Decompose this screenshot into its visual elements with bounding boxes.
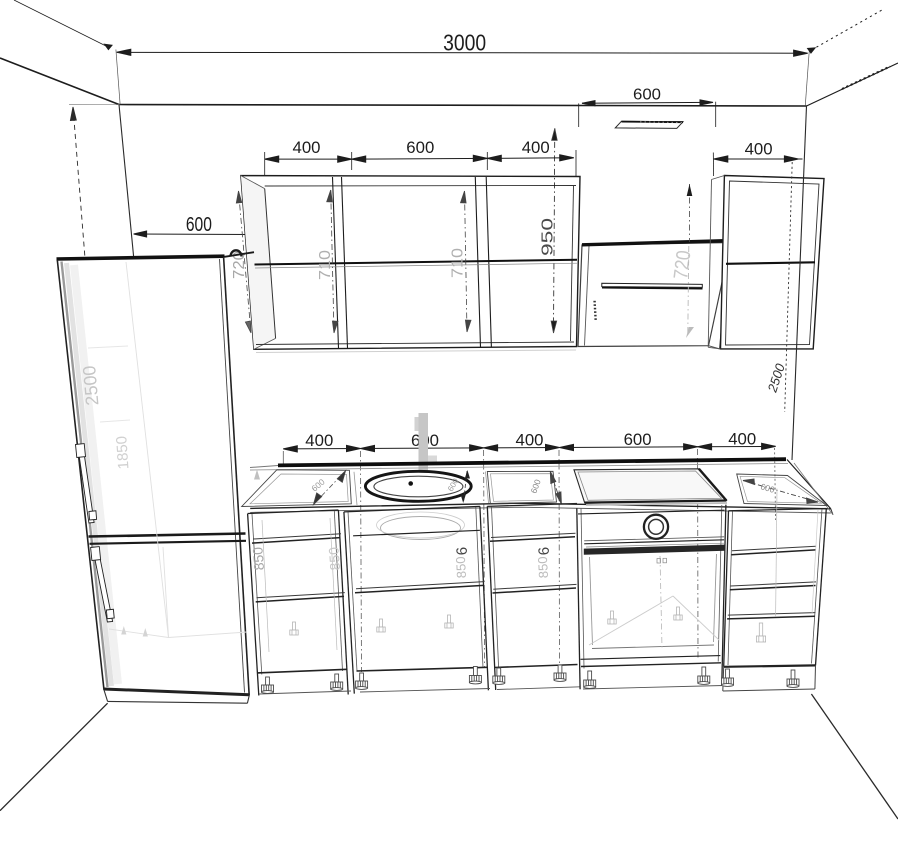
svg-text:6: 6: [454, 546, 471, 555]
svg-text:710: 710: [317, 250, 334, 280]
svg-text:710: 710: [450, 248, 467, 278]
svg-text:1850: 1850: [113, 435, 132, 469]
svg-text:950: 950: [540, 217, 557, 256]
svg-text:400: 400: [522, 138, 550, 157]
svg-text:600: 600: [186, 214, 212, 236]
svg-text:2500: 2500: [79, 365, 102, 407]
svg-text:3000: 3000: [443, 30, 486, 56]
svg-text:720: 720: [670, 249, 695, 280]
svg-text:400: 400: [728, 430, 756, 449]
svg-text:400: 400: [293, 138, 321, 157]
svg-text:850: 850: [249, 546, 267, 571]
svg-text:400: 400: [745, 140, 773, 159]
svg-text:400: 400: [516, 431, 544, 450]
svg-text:850: 850: [325, 546, 343, 571]
svg-text:850: 850: [535, 556, 551, 578]
svg-text:400: 400: [305, 431, 333, 450]
svg-text:600: 600: [633, 87, 661, 104]
svg-text:600: 600: [624, 430, 652, 449]
svg-text:600: 600: [406, 138, 434, 157]
svg-text:6: 6: [536, 546, 553, 555]
svg-text:850: 850: [453, 556, 469, 578]
